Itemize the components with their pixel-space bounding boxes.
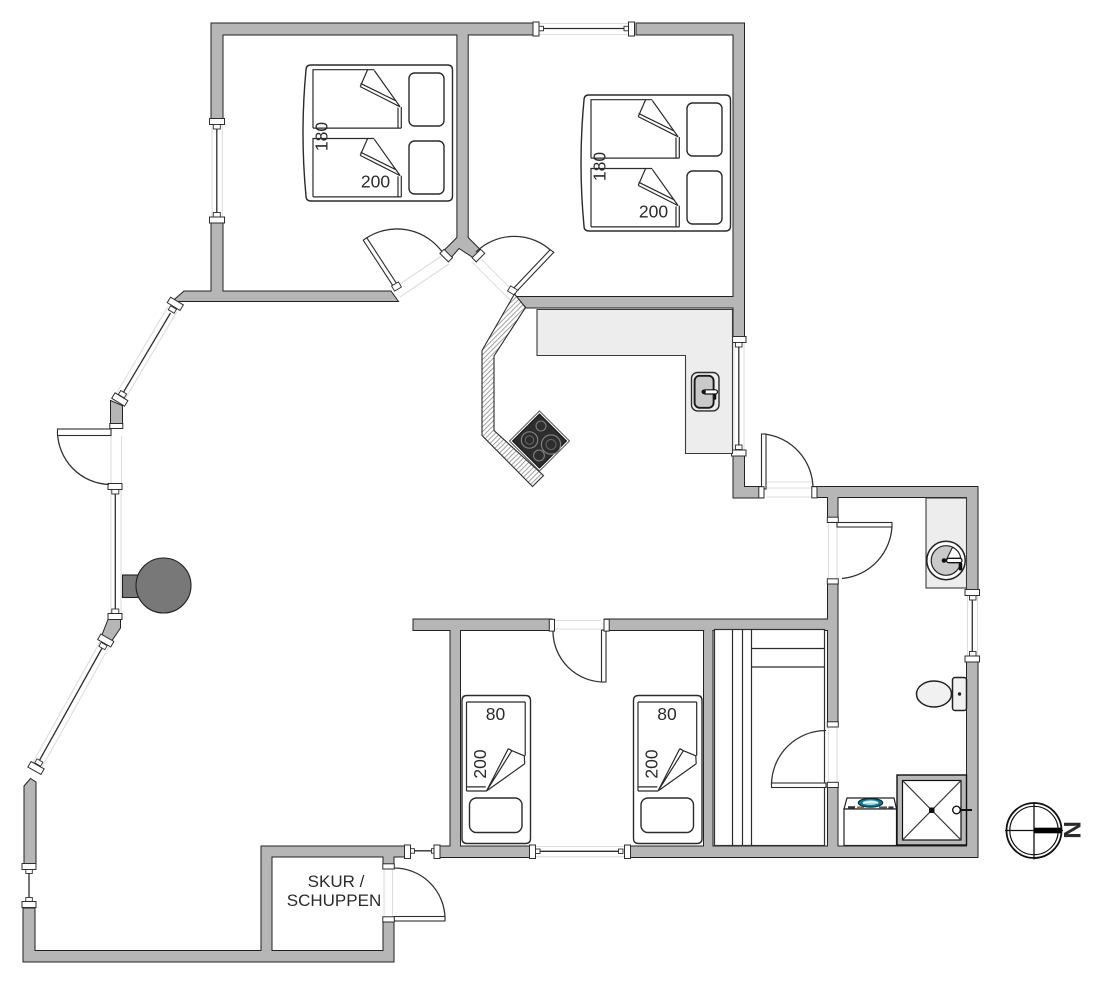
svg-text:200: 200	[642, 749, 662, 778]
svg-text:180: 180	[590, 152, 610, 181]
svg-text:SKUR /: SKUR /	[308, 872, 365, 891]
svg-text:200: 200	[639, 202, 668, 222]
svg-text:SCHUPPEN: SCHUPPEN	[287, 891, 381, 910]
svg-text:200: 200	[470, 749, 490, 778]
svg-text:N: N	[1058, 821, 1085, 839]
svg-text:80: 80	[486, 704, 506, 724]
svg-text:200: 200	[361, 172, 390, 192]
svg-text:80: 80	[657, 704, 677, 724]
svg-text:180: 180	[312, 122, 332, 151]
